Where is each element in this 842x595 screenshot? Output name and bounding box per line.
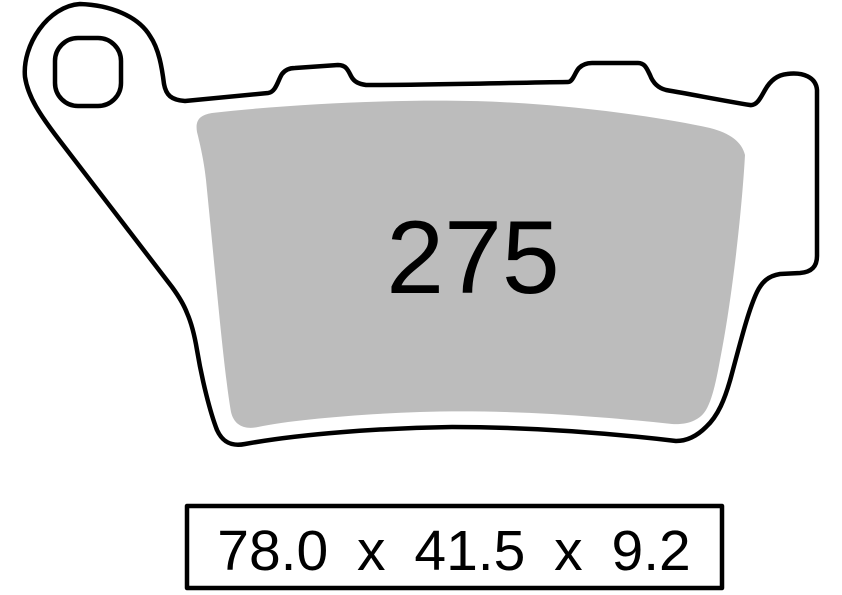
diagram-canvas: 275 78.0 x 41.5 x 9.2 bbox=[0, 0, 842, 595]
pad-number-label: 275 bbox=[386, 200, 560, 316]
brake-pad-diagram: 275 78.0 x 41.5 x 9.2 bbox=[0, 0, 842, 595]
dimensions-label: 78.0 x 41.5 x 9.2 bbox=[217, 519, 690, 583]
